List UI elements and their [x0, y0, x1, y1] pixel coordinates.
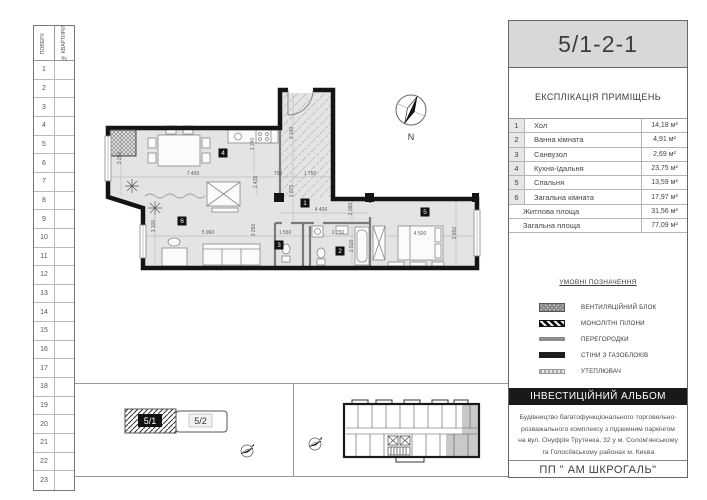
apartment-number-cell [55, 136, 74, 154]
explication-title: ЕКСПЛІКАЦІЯ ПРИМІЩЕНЬ [509, 92, 687, 102]
floor-number: 23 [34, 471, 55, 490]
apartment-number-cell [55, 341, 74, 359]
apartment-number-cell [55, 378, 74, 396]
total-name: Житлова площа [509, 207, 641, 216]
legend-title: УМОВНІ ПОЗНАЧЕННЯ [509, 279, 687, 286]
floor-row: 5 [34, 136, 74, 155]
apartment-number-cell [55, 154, 74, 172]
legend-item: СТІНИ З ГАЗОБЛОКІВ [509, 347, 687, 363]
site-key-plan: 5/1 5/2 [123, 404, 238, 440]
apartment-number-cell [55, 285, 74, 303]
apartment-number-cell [55, 434, 74, 452]
dimension-label: 700 [274, 171, 283, 177]
floor-row: 14 [34, 303, 74, 322]
compass-rose-icon: N [388, 86, 434, 148]
insulation-swatch [539, 369, 565, 374]
dimension-label: 3 140 [289, 127, 295, 140]
pilon-swatch [539, 320, 565, 327]
explication-total-row: Загальна площа77,09 м² [509, 219, 687, 233]
floor-row: 9 [34, 210, 74, 229]
room-badge-number: 3 [277, 242, 281, 249]
building-overview-plan [336, 394, 486, 470]
floor-row: 7 [34, 173, 74, 192]
explication-row: 3Санвузол2,69 м² [509, 148, 687, 162]
partition-swatch [539, 337, 565, 341]
mini-compass-icon [306, 434, 324, 452]
floor-number: 16 [34, 341, 55, 359]
floors-table: ПОВЕРХ № КВАРТИРИ 1234567891011121314151… [33, 25, 75, 491]
floor-row: 3 [34, 98, 74, 117]
highlighted-unit [446, 404, 479, 457]
apartment-col-header-label: № КВАРТИРИ [62, 26, 67, 61]
legend-list: ВЕНТИЛЯЦІЙНИЙ БЛОКМОНОЛІТНІ ПІЛОНИПЕРЕГО… [509, 299, 687, 379]
legend-item: ВЕНТИЛЯЦІЙНИЙ БЛОК [509, 299, 687, 315]
legend-item-label: СТІНИ З ГАЗОБЛОКІВ [581, 352, 648, 359]
room-index: 6 [509, 190, 525, 203]
floor-number: 11 [34, 248, 55, 266]
dimension-label: 4 500 [414, 231, 427, 237]
floors-col-header-label: ПОВЕРХ [41, 33, 46, 54]
dimension-label: 3 100 [151, 220, 157, 233]
floor-row: 12 [34, 266, 74, 285]
legend-item-label: ПЕРЕГОРОДКИ [581, 336, 629, 343]
floor-number: 21 [34, 434, 55, 452]
album-bar: ІНВЕСТИЦІЙНИЙ АЛЬБОМ [509, 388, 687, 405]
floor-row: 23 [34, 471, 74, 490]
apartment-number-cell [55, 471, 74, 490]
apartment-code: 5/1-2-1 [509, 21, 687, 68]
dimension-label: 2 750 [332, 230, 345, 236]
floor-number: 14 [34, 303, 55, 321]
apartment-number-cell [55, 117, 74, 135]
floor-number: 1 [34, 61, 55, 79]
drawing-sheet: ПОВЕРХ № КВАРТИРИ 1234567891011121314151… [0, 0, 707, 500]
apartment-number-cell [55, 173, 74, 191]
apartment-number-cell [55, 303, 74, 321]
floor-number: 17 [34, 359, 55, 377]
room-area: 13,59 м² [641, 176, 687, 189]
legend-item-label: МОНОЛІТНІ ПІЛОНИ [581, 320, 645, 327]
floor-row: 2 [34, 80, 74, 99]
floor-number: 7 [34, 173, 55, 191]
room-name: Санвузол [525, 150, 641, 159]
room-name: Спальня [525, 178, 641, 187]
floor-row: 20 [34, 415, 74, 434]
apartment-floor-plan: 123456 7 4003 2501 7401 4353 1407001 750… [88, 78, 508, 313]
floor-number: 4 [34, 117, 55, 135]
floor-number: 6 [34, 154, 55, 172]
room-index: 4 [509, 162, 525, 175]
mini-compass-icon [238, 441, 256, 459]
apartment-number-cell [55, 80, 74, 98]
apartment-col-header: № КВАРТИРИ [55, 26, 74, 61]
dimension-label: 4 400 [315, 207, 328, 213]
dimension-label: 2 850 [452, 227, 458, 240]
floor-row: 4 [34, 117, 74, 136]
room-badge-number: 6 [180, 218, 184, 225]
legend-item: УТЕПЛЮВАЧ [509, 363, 687, 379]
room-index: 3 [509, 148, 525, 161]
overview-core [388, 436, 410, 455]
room-name: Хол [525, 121, 641, 130]
dimension-label: 3 250 [251, 224, 257, 237]
total-area: 77,09 м² [641, 219, 687, 232]
explication-row: 6Загальна кімната17,97 м² [509, 190, 687, 204]
floor-number: 18 [34, 378, 55, 396]
apartment-number-cell [55, 322, 74, 340]
floor-number: 15 [34, 322, 55, 340]
apartment-number-cell [55, 98, 74, 116]
floor-number: 19 [34, 397, 55, 415]
dimension-label: 3 250 [117, 152, 123, 165]
legend-item-label: УТЕПЛЮВАЧ [581, 368, 621, 375]
floor-number: 5 [34, 136, 55, 154]
compass-north-label: N [408, 132, 415, 142]
total-name: Загальна площа [509, 221, 641, 230]
floor-row: 17 [34, 359, 74, 378]
apartment-number-cell [55, 266, 74, 284]
floor-number: 13 [34, 285, 55, 303]
explication-row: 1Хол14,18 м² [509, 119, 687, 133]
apartment-number-cell [55, 359, 74, 377]
floor-row: 19 [34, 397, 74, 416]
strip-bottom-line [75, 476, 508, 477]
explication-row: 4Кухня-їдальня23,75 м² [509, 162, 687, 176]
explication-row: 2Ванна кімната4,91 м² [509, 133, 687, 147]
room-area: 2,69 м² [641, 148, 687, 161]
total-area: 31,56 м² [641, 205, 687, 218]
block-5-1-label: 5/1 [144, 416, 157, 426]
strip-divider-line [293, 383, 294, 476]
room-name: Загальна кімната [525, 193, 641, 202]
apartment-number-cell [55, 453, 74, 471]
apartment-number-cell [55, 415, 74, 433]
room-area: 4,91 м² [641, 133, 687, 146]
dimension-label: 2 090 [348, 203, 354, 216]
floor-number: 22 [34, 453, 55, 471]
room-badge-number: 4 [221, 150, 225, 157]
room-badge-number: 2 [338, 248, 342, 255]
hall-hatch-area [282, 92, 331, 197]
floor-row: 11 [34, 248, 74, 267]
apartment-number-cell [55, 61, 74, 79]
room-name: Кухня-їдальня [525, 164, 641, 173]
floor-number: 10 [34, 229, 55, 247]
floor-number: 2 [34, 80, 55, 98]
room-badge-number: 1 [303, 200, 307, 207]
floor-number: 12 [34, 266, 55, 284]
floor-row: 13 [34, 285, 74, 304]
floor-row: 6 [34, 154, 74, 173]
dimension-label: 1 910 [349, 240, 355, 253]
floor-row: 8 [34, 192, 74, 211]
title-block-panel: 5/1-2-1 ЕКСПЛІКАЦІЯ ПРИМІЩЕНЬ 1Хол14,18 … [508, 20, 688, 478]
apartment-number-cell [55, 229, 74, 247]
floor-row: 1 [34, 61, 74, 80]
room-badge-number: 5 [423, 209, 427, 216]
apartment-number-cell [55, 248, 74, 266]
floor-number: 8 [34, 192, 55, 210]
room-area: 17,97 м² [641, 190, 687, 203]
floors-col-header: ПОВЕРХ [34, 26, 55, 61]
block-5-2-label: 5/2 [194, 416, 207, 426]
explication-total-row: Житлова площа31,56 м² [509, 205, 687, 219]
room-index: 2 [509, 133, 525, 146]
floor-row: 22 [34, 453, 74, 472]
project-address: Будівництво багатофункціонального торгов… [509, 408, 687, 460]
floor-row: 18 [34, 378, 74, 397]
dimension-label: 1 435 [253, 176, 259, 189]
dimension-label: 7 400 [187, 171, 200, 177]
explication-table: 1Хол14,18 м²2Ванна кімната4,91 м²3Санвуз… [509, 118, 687, 233]
floor-row: 15 [34, 322, 74, 341]
floors-table-header: ПОВЕРХ № КВАРТИРИ [34, 26, 74, 61]
strip-top-line [75, 383, 508, 384]
vent-block [110, 130, 136, 156]
floor-row: 10 [34, 229, 74, 248]
bedroom-furniture [373, 226, 444, 266]
dimension-label: 2 675 [289, 185, 295, 198]
apartment-number-cell [55, 192, 74, 210]
dimension-label: 1 740 [250, 138, 256, 151]
floor-number: 20 [34, 415, 55, 433]
company-name: ПП " АМ ШКРОГАЛЬ" [509, 460, 687, 479]
legend-item: МОНОЛІТНІ ПІЛОНИ [509, 315, 687, 331]
vent-swatch [539, 303, 565, 312]
dimension-label: 5 960 [202, 230, 215, 236]
room-index: 1 [509, 119, 525, 132]
room-name: Ванна кімната [525, 135, 641, 144]
legend-item-label: ВЕНТИЛЯЦІЙНИЙ БЛОК [581, 304, 656, 311]
floor-row: 16 [34, 341, 74, 360]
floor-number: 3 [34, 98, 55, 116]
room-index: 5 [509, 176, 525, 189]
floors-rows: 1234567891011121314151617181920212223 [34, 61, 74, 490]
explication-row: 5Спальня13,59 м² [509, 176, 687, 190]
dimension-label: 1 750 [304, 171, 317, 177]
room-area: 23,75 м² [641, 162, 687, 175]
legend-item: ПЕРЕГОРОДКИ [509, 331, 687, 347]
gasblock-swatch [539, 352, 565, 358]
room-area: 14,18 м² [641, 119, 687, 132]
floor-row: 21 [34, 434, 74, 453]
dimension-label: 1 550 [279, 230, 292, 236]
apartment-number-cell [55, 210, 74, 228]
apartment-number-cell [55, 397, 74, 415]
floor-number: 9 [34, 210, 55, 228]
